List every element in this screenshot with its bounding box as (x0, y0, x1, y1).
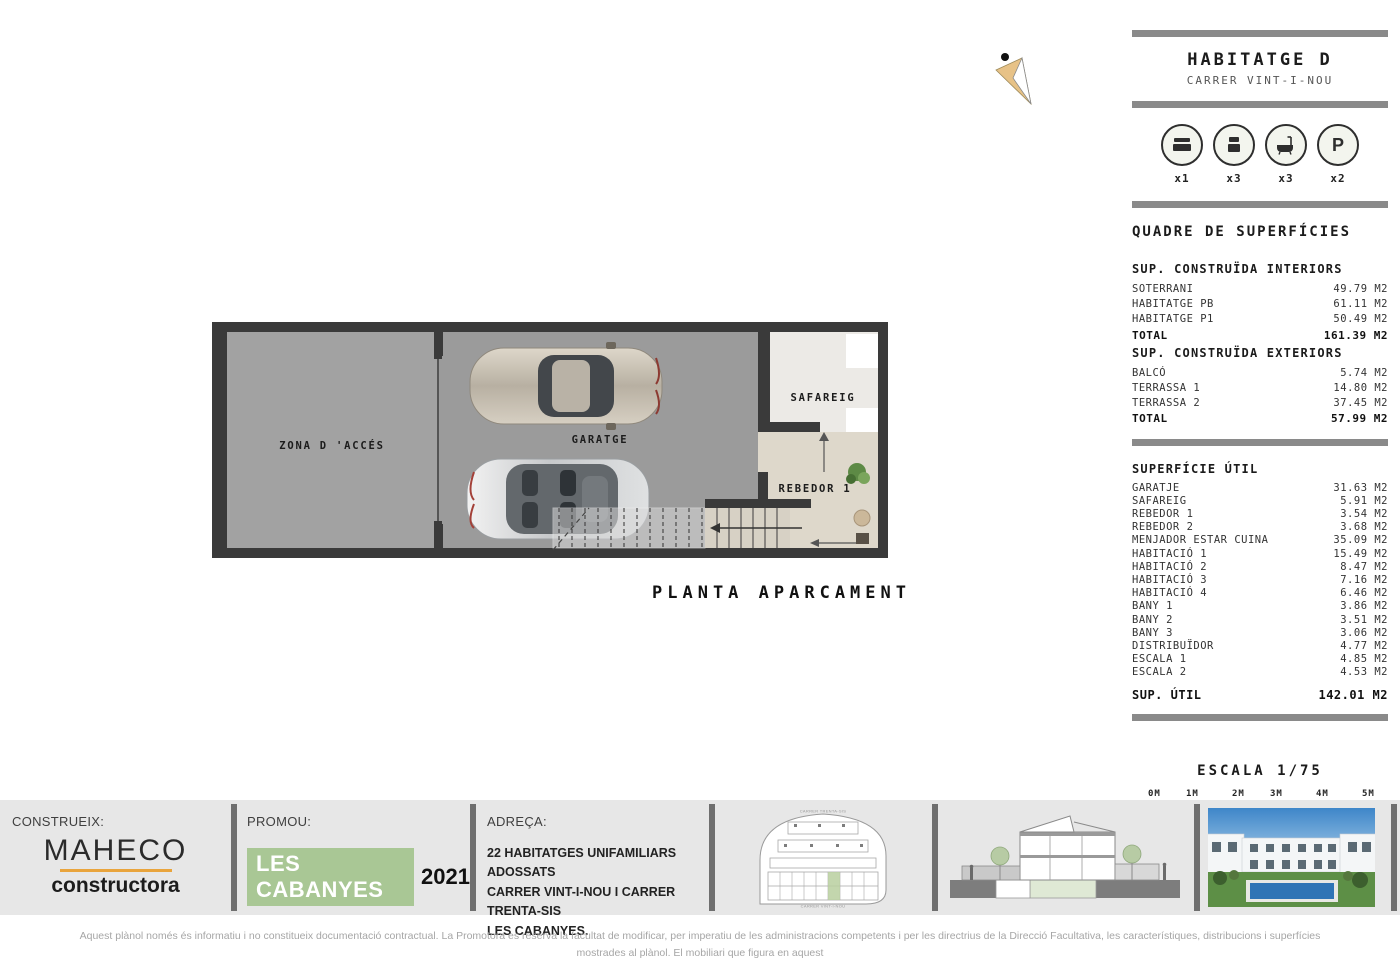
north-arrow-icon (985, 45, 1040, 110)
table-row: BANY 13.86 M2 (1132, 600, 1388, 613)
unit-title: HABITATGE D (1132, 50, 1388, 70)
promoter-year: 2021 (421, 864, 470, 890)
table-row: MENJADOR ESTAR CUINA35.09 M2 (1132, 534, 1388, 547)
disclaimer-line-1: Aquest plànol només és informatiu i no c… (60, 928, 1340, 963)
promoter-name: LES CABANYES (247, 848, 414, 906)
legal-disclaimer: Aquest plànol només és informatiu i no c… (60, 928, 1340, 963)
feature-parking: P x2 (1317, 124, 1359, 185)
scale-tick: 2M (1232, 789, 1245, 799)
table-row: ESCALA 24.53 M2 (1132, 666, 1388, 679)
divider-bar (1132, 439, 1388, 446)
table-row: TERRASSA 114.80 M2 (1132, 381, 1388, 396)
table-row: HABITACIÓ 28.47 M2 (1132, 561, 1388, 574)
address-line: 22 HABITATGES UNIFAMILIARS ADOSSATS (487, 844, 702, 883)
section-elevation-thumbnail (950, 810, 1180, 905)
table-total-row: SUP. ÚTIL142.01 M2 (1132, 689, 1388, 702)
table-row: ESCALA 14.85 M2 (1132, 653, 1388, 666)
table-row: BANY 23.51 M2 (1132, 614, 1388, 627)
interiors-rows: SOTERRANI49.79 M2 HABITATGE PB61.11 M2 H… (1132, 282, 1388, 343)
section-heading-interiors: SUP. CONSTRUÏDA INTERIORS (1132, 262, 1388, 276)
svg-text:CARRER VINT-I-NOU: CARRER VINT-I-NOU (801, 904, 846, 909)
table-row: HABITATGE P150.49 M2 (1132, 312, 1388, 327)
table-row: GARATJE31.63 M2 (1132, 482, 1388, 495)
render-photo (1208, 808, 1375, 907)
section-heading-util: SUPERFÍCIE ÚTIL (1132, 462, 1388, 476)
side-table-icon (854, 510, 870, 526)
site-plan-thumbnail: CARRER TRENTA-SIS CARRER VINT-I-NOU (748, 808, 898, 908)
promoter-logo: LES CABANYES 2021 (247, 848, 470, 906)
divider-bar (1132, 714, 1388, 721)
svg-text:CARRER TRENTA-SIS: CARRER TRENTA-SIS (800, 809, 847, 814)
room-label-access: ZONA D 'ACCÉS (279, 440, 385, 452)
floor-plan: ZONA D 'ACCÉS GARATGE SAFAREIG REBEDOR 1 (212, 322, 888, 558)
address-line: CARRER VINT-I-NOU I CARRER TRENTA-SIS (487, 883, 702, 922)
room-label-garage: GARATGE (572, 434, 629, 446)
table-total-row: TOTAL161.39 M2 (1132, 328, 1388, 343)
surfaces-table-title: QUADRE DE SUPERFÍCIES (1132, 224, 1388, 240)
footer-divider (231, 804, 237, 911)
scale-tick: 3M (1270, 789, 1283, 799)
table-row: REBEDOR 23.68 M2 (1132, 521, 1388, 534)
table-row: SOTERRANI49.79 M2 (1132, 282, 1388, 297)
scale-tick: 5M (1362, 789, 1375, 799)
footer-divider (1194, 804, 1200, 911)
promou-label: PROMOU: (247, 814, 311, 829)
info-panel: HABITATGE D CARRER VINT-I-NOU x1 (1132, 0, 1388, 815)
table-row: DISTRIBUÏDOR4.77 M2 (1132, 640, 1388, 653)
adreca-label: ADREÇA: (487, 814, 547, 829)
divider-bar (1132, 101, 1388, 108)
feature-count: x3 (1226, 172, 1241, 185)
plant-icon (846, 463, 870, 484)
table-row: TERRASSA 237.45 M2 (1132, 396, 1388, 411)
scale-label: ESCALA 1/75 (1132, 763, 1388, 779)
table-row: HABITACIÓ 37.16 M2 (1132, 574, 1388, 587)
feature-double-bed: x1 (1161, 124, 1203, 185)
footer-divider (932, 804, 938, 911)
room-label-hall: REBEDOR 1 (778, 483, 851, 495)
divider-bar (1132, 30, 1388, 37)
plan-title: PLANTA APARCAMENT (652, 583, 911, 603)
table-row: SAFAREIG5.91 M2 (1132, 495, 1388, 508)
exteriors-rows: BALCÓ5.74 M2 TERRASSA 114.80 M2 TERRASSA… (1132, 366, 1388, 427)
scale-tick: 4M (1316, 789, 1329, 799)
parking-icon: P (1317, 124, 1359, 166)
feature-bathtub: x3 (1265, 124, 1307, 185)
builder-name: MAHECO (0, 834, 231, 868)
util-rows: GARATJE31.63 M2 SAFAREIG5.91 M2 REBEDOR … (1132, 482, 1388, 702)
feature-count: x1 (1174, 172, 1189, 185)
svg-text:P: P (1332, 135, 1344, 155)
double-bed-icon (1161, 124, 1203, 166)
feature-count: x3 (1278, 172, 1293, 185)
table-row: HABITACIÓ 46.46 M2 (1132, 587, 1388, 600)
builder-sub: constructora (0, 874, 231, 898)
builder-logo-underline (60, 869, 172, 872)
bathtub-icon (1265, 124, 1307, 166)
table-row: BANY 33.06 M2 (1132, 627, 1388, 640)
single-bed-icon (1213, 124, 1255, 166)
divider-bar (1132, 201, 1388, 208)
plan-sheet: ZONA D 'ACCÉS GARATGE SAFAREIG REBEDOR 1… (0, 0, 1400, 963)
builder-logo: MAHECO constructora (0, 834, 231, 898)
feature-single-bed: x3 (1213, 124, 1255, 185)
table-total-row: TOTAL57.99 M2 (1132, 411, 1388, 426)
section-heading-exteriors: SUP. CONSTRUÏDA EXTERIORS (1132, 346, 1388, 360)
table-row: HABITATGE PB61.11 M2 (1132, 297, 1388, 312)
construeix-label: CONSTRUEIX: (12, 814, 104, 829)
scale-tick: 0M (1148, 789, 1161, 799)
scale-tick: 1M (1186, 789, 1199, 799)
table-row: REBEDOR 13.54 M2 (1132, 508, 1388, 521)
site-plan-highlight (828, 872, 840, 900)
unit-subtitle: CARRER VINT-I-NOU (1132, 74, 1388, 87)
feature-count: x2 (1330, 172, 1345, 185)
footer-band: CONSTRUEIX: MAHECO constructora PROMOU: … (0, 800, 1400, 915)
cabinet-icon (856, 533, 869, 544)
footer-divider (1391, 804, 1397, 911)
footer-divider (470, 804, 476, 911)
table-row: BALCÓ5.74 M2 (1132, 366, 1388, 381)
address-block: 22 HABITATGES UNIFAMILIARS ADOSSATS CARR… (487, 844, 702, 941)
table-row: HABITACIÓ 115.49 M2 (1132, 548, 1388, 561)
feature-icons: x1 x3 (1132, 124, 1388, 185)
footer-divider (709, 804, 715, 911)
room-label-laundry: SAFAREIG (791, 392, 856, 404)
